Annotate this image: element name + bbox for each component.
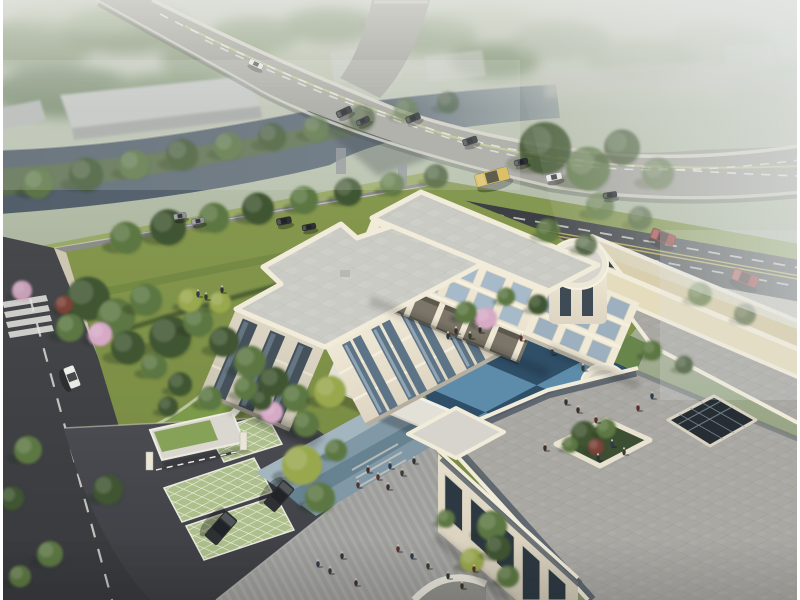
- rooftop-unit: [340, 270, 350, 277]
- gate-pillar: [146, 452, 153, 470]
- haze-east: [660, 230, 800, 400]
- haze-mid: [0, 60, 520, 190]
- gate-pillar: [240, 432, 247, 450]
- rendering-canvas: [0, 0, 800, 600]
- architectural-rendering: [0, 0, 800, 600]
- left-border: [0, 0, 3, 600]
- bottom-vignette: [0, 540, 800, 600]
